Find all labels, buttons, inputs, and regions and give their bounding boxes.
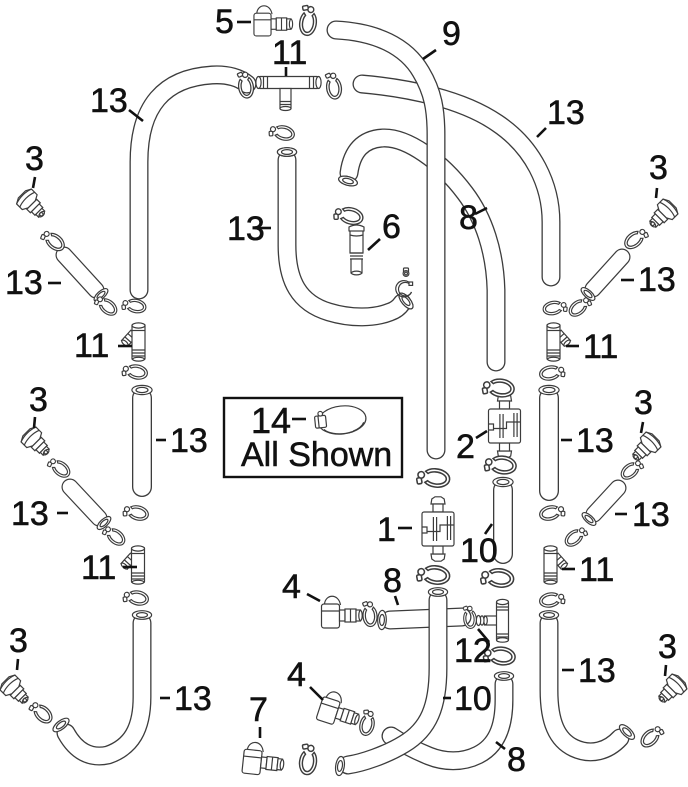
svg-text:14: 14 xyxy=(251,400,291,441)
svg-text:All Shown: All Shown xyxy=(241,436,392,474)
svg-text:13: 13 xyxy=(638,261,676,299)
svg-text:9: 9 xyxy=(442,15,461,53)
svg-text:11: 11 xyxy=(74,327,109,365)
svg-text:11: 11 xyxy=(272,34,307,72)
svg-text:5: 5 xyxy=(215,3,234,41)
svg-text:13: 13 xyxy=(632,496,670,534)
svg-text:3: 3 xyxy=(658,628,677,666)
svg-text:1: 1 xyxy=(377,511,396,549)
svg-text:10: 10 xyxy=(460,532,498,570)
svg-text:3: 3 xyxy=(649,149,668,187)
svg-text:13: 13 xyxy=(547,94,585,132)
svg-text:13: 13 xyxy=(578,652,616,690)
svg-text:8: 8 xyxy=(459,199,478,237)
svg-text:13: 13 xyxy=(5,264,43,302)
svg-text:13: 13 xyxy=(174,680,212,718)
svg-text:8: 8 xyxy=(383,562,402,600)
svg-text:11: 11 xyxy=(583,328,618,366)
svg-text:11: 11 xyxy=(81,549,116,587)
svg-text:7: 7 xyxy=(249,691,268,729)
svg-text:8: 8 xyxy=(507,741,526,779)
svg-text:10: 10 xyxy=(454,680,492,718)
svg-text:4: 4 xyxy=(282,568,301,606)
svg-text:13: 13 xyxy=(576,422,614,460)
svg-text:3: 3 xyxy=(634,384,653,422)
svg-text:3: 3 xyxy=(9,622,28,660)
svg-text:13: 13 xyxy=(11,495,49,533)
svg-text:11: 11 xyxy=(579,551,614,589)
svg-text:2: 2 xyxy=(456,428,475,466)
svg-text:6: 6 xyxy=(382,208,401,246)
svg-text:13: 13 xyxy=(90,82,128,120)
svg-text:13: 13 xyxy=(170,422,208,460)
svg-text:3: 3 xyxy=(29,381,48,419)
svg-text:4: 4 xyxy=(287,656,306,694)
svg-text:3: 3 xyxy=(25,140,44,178)
